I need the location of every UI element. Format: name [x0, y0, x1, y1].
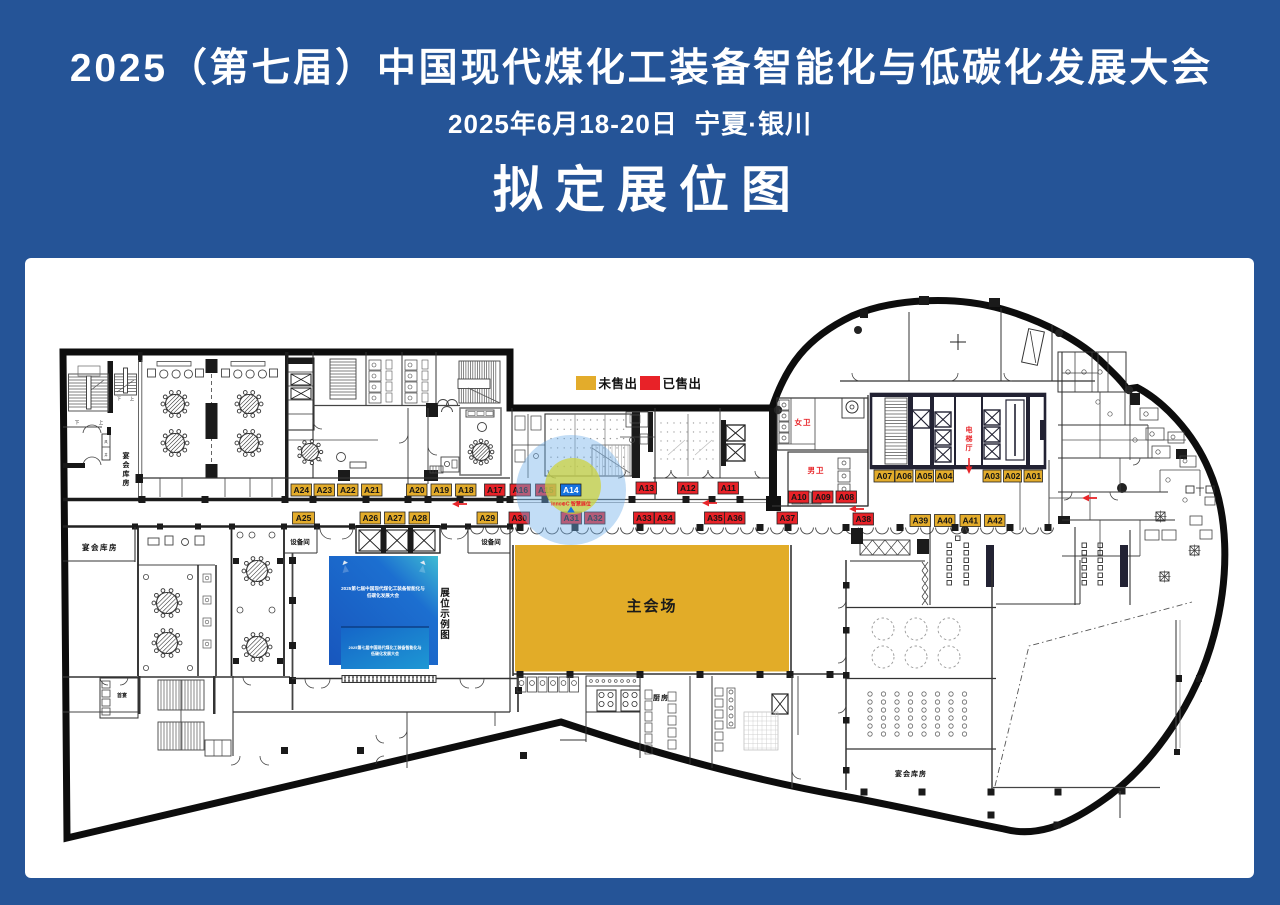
svg-text:A19: A19 [433, 485, 449, 495]
svg-text:房: 房 [123, 478, 130, 487]
svg-text:首宴: 首宴 [117, 692, 127, 699]
svg-text:设备间: 设备间 [290, 537, 310, 546]
svg-text:inno⊕C 智慧展位: inno⊕C 智慧展位 [551, 501, 591, 508]
svg-text:已售出: 已售出 [662, 376, 701, 391]
svg-text:A12: A12 [680, 483, 696, 493]
svg-text:宴会库房: 宴会库房 [895, 769, 927, 778]
svg-text:男卫: 男卫 [808, 466, 825, 475]
svg-text:厨房: 厨房 [653, 693, 669, 702]
svg-text:A25: A25 [296, 513, 312, 523]
svg-text:A26: A26 [362, 513, 378, 523]
svg-text:A20: A20 [409, 485, 425, 495]
svg-text:A22: A22 [340, 485, 356, 495]
svg-text:宴: 宴 [123, 451, 130, 460]
svg-text:A05: A05 [917, 471, 933, 481]
svg-text:A14: A14 [563, 485, 579, 495]
svg-text:A39: A39 [912, 515, 928, 525]
svg-text:会: 会 [123, 460, 131, 469]
svg-text:A42: A42 [987, 515, 1003, 525]
svg-text:A10: A10 [791, 492, 807, 502]
svg-text:A24: A24 [293, 485, 309, 495]
svg-text:A33: A33 [636, 513, 652, 523]
svg-text:A27: A27 [387, 513, 403, 523]
svg-text:例: 例 [440, 619, 450, 631]
svg-text:A09: A09 [815, 492, 831, 502]
svg-text:A03: A03 [984, 471, 1000, 481]
svg-text:A35: A35 [707, 513, 723, 523]
svg-text:A06: A06 [896, 471, 912, 481]
svg-text:梯: 梯 [966, 434, 973, 443]
svg-text:A23: A23 [316, 485, 332, 495]
svg-text:位: 位 [440, 598, 450, 610]
svg-text:A02: A02 [1005, 471, 1021, 481]
svg-text:低碳化发展大会: 低碳化发展大会 [370, 650, 399, 656]
svg-text:A04: A04 [937, 471, 953, 481]
svg-text:A08: A08 [838, 492, 854, 502]
svg-text:A01: A01 [1025, 471, 1041, 481]
svg-text:A37: A37 [779, 513, 795, 523]
svg-text:A38: A38 [855, 514, 871, 524]
svg-text:A13: A13 [638, 483, 654, 493]
svg-text:示: 示 [440, 609, 450, 620]
svg-text:上: 上 [99, 419, 104, 425]
svg-text:A29: A29 [479, 513, 495, 523]
svg-text:电: 电 [966, 425, 973, 434]
svg-text:井: 井 [104, 452, 107, 457]
svg-text:展: 展 [440, 588, 450, 599]
svg-text:A17: A17 [487, 485, 503, 495]
svg-text:A07: A07 [876, 471, 892, 481]
svg-text:未售出: 未售出 [597, 376, 637, 391]
svg-text:A41: A41 [962, 515, 978, 525]
svg-text:A21: A21 [364, 485, 380, 495]
svg-text:A34: A34 [657, 513, 673, 523]
svg-text:A40: A40 [937, 515, 953, 525]
svg-text:库: 库 [123, 469, 130, 478]
svg-text:A11: A11 [721, 483, 736, 493]
svg-text:2025第七届中国现代煤化工装备智能化与: 2025第七届中国现代煤化工装备智能化与 [349, 644, 422, 650]
svg-text:宴会库房: 宴会库房 [82, 542, 118, 552]
svg-text:厅: 厅 [966, 444, 973, 452]
svg-text:设备间: 设备间 [481, 537, 501, 546]
svg-text:低碳化发展大会: 低碳化发展大会 [366, 592, 400, 599]
svg-text:A28: A28 [411, 513, 427, 523]
svg-text:2025第七届中国现代煤化工装备智能化与: 2025第七届中国现代煤化工装备智能化与 [341, 585, 425, 592]
svg-text:女卫: 女卫 [795, 417, 812, 427]
svg-text:主会场: 主会场 [626, 597, 677, 615]
svg-text:图: 图 [440, 630, 450, 641]
svg-text:A18: A18 [458, 485, 474, 495]
svg-text:A36: A36 [727, 513, 743, 523]
svg-text:上: 上 [130, 395, 134, 401]
